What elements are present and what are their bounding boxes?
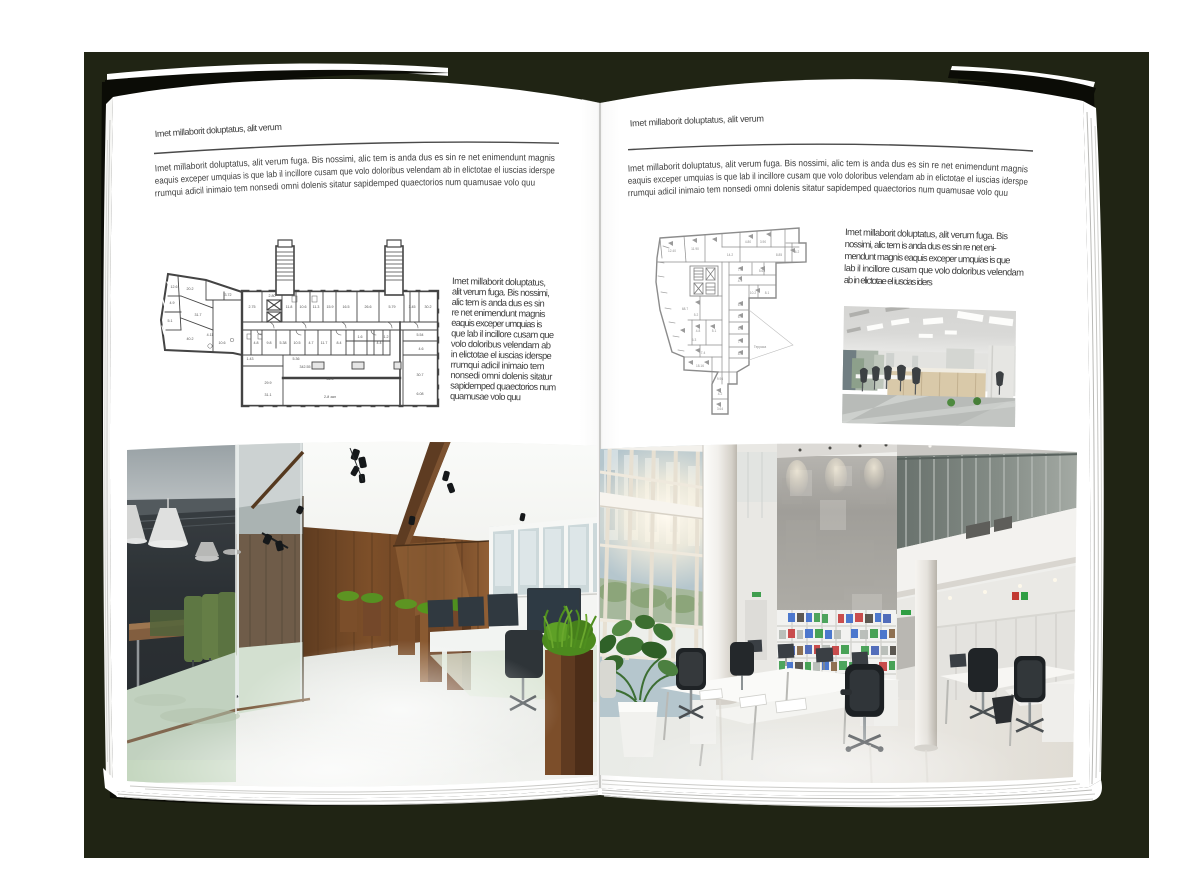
svg-text:26.6: 26.6	[365, 305, 372, 309]
svg-text:16.5: 16.5	[343, 305, 350, 309]
svg-text:20.2: 20.2	[187, 287, 194, 291]
svg-text:15.9: 15.9	[327, 305, 334, 309]
svg-text:2.75: 2.75	[249, 305, 256, 309]
svg-text:12.40: 12.40	[668, 249, 676, 253]
svg-text:14.2: 14.2	[727, 253, 733, 257]
svg-text:5.38: 5.38	[280, 341, 287, 345]
svg-text:10.6: 10.6	[300, 305, 307, 309]
svg-text:5.64: 5.64	[759, 269, 765, 273]
svg-text:7.7: 7.7	[738, 340, 743, 344]
svg-text:4.9: 4.9	[738, 279, 743, 283]
svg-text:9.96: 9.96	[717, 377, 723, 381]
svg-text:85.3: 85.3	[327, 377, 334, 381]
svg-text:5.1: 5.1	[168, 319, 173, 323]
svg-text:3.72: 3.72	[225, 293, 232, 297]
svg-text:2-й зал: 2-й зал	[324, 395, 336, 399]
svg-text:quamusae volo quu: quamusae volo quu	[450, 391, 521, 402]
svg-text:30.2: 30.2	[425, 305, 432, 309]
svg-text:8.4: 8.4	[337, 341, 342, 345]
svg-text:10.6: 10.6	[219, 341, 226, 345]
svg-text:11.90: 11.90	[691, 247, 699, 251]
svg-text:3.64: 3.64	[717, 407, 723, 411]
svg-text:11.8: 11.8	[286, 305, 293, 309]
svg-text:11.3: 11.3	[313, 305, 320, 309]
svg-text:5.2: 5.2	[694, 313, 699, 317]
svg-text:18.16: 18.16	[696, 364, 704, 368]
svg-text:1.2: 1.2	[384, 335, 389, 339]
svg-text:1.6: 1.6	[358, 335, 363, 339]
svg-text:6.4: 6.4	[738, 315, 743, 319]
svg-text:6.2: 6.2	[795, 250, 800, 254]
svg-text:5.79: 5.79	[389, 305, 396, 309]
svg-text:1.43: 1.43	[247, 357, 254, 361]
svg-text:31.1: 31.1	[265, 393, 272, 397]
svg-text:12.6: 12.6	[171, 285, 178, 289]
svg-text:6.9: 6.9	[738, 327, 743, 331]
svg-text:7.2: 7.2	[738, 268, 743, 272]
svg-text:6.08: 6.08	[417, 392, 424, 396]
svg-text:5.1: 5.1	[712, 329, 717, 333]
svg-text:4.2: 4.2	[718, 392, 723, 396]
svg-text:8.2: 8.2	[738, 352, 743, 356]
svg-text:31.7: 31.7	[195, 313, 202, 317]
svg-text:5.36: 5.36	[293, 357, 300, 361]
svg-text:6.3: 6.3	[692, 338, 697, 342]
svg-text:4.80: 4.80	[745, 240, 751, 244]
svg-text:4.4: 4.4	[377, 341, 382, 345]
svg-text:9.8: 9.8	[267, 341, 272, 345]
svg-text:ab in elictotae el iuscias ide: ab in elictotae el iuscias iders	[844, 274, 934, 287]
svg-text:40.2: 40.2	[187, 337, 194, 341]
svg-text:5.54: 5.54	[417, 333, 424, 337]
svg-text:1.45: 1.45	[409, 305, 416, 309]
svg-text:29.9: 29.9	[265, 381, 272, 385]
svg-text:4.8: 4.8	[696, 329, 701, 333]
svg-text:8.1: 8.1	[765, 291, 770, 295]
svg-text:8.85: 8.85	[776, 253, 782, 257]
svg-text:68.7: 68.7	[682, 307, 688, 311]
svg-text:4.9: 4.9	[170, 301, 175, 305]
svg-text:11.7: 11.7	[321, 341, 328, 345]
svg-text:3.90: 3.90	[760, 240, 766, 244]
svg-text:6.8: 6.8	[738, 303, 743, 307]
svg-text:10.5: 10.5	[294, 341, 301, 345]
svg-text:4.7: 4.7	[309, 341, 314, 345]
svg-text:2.80: 2.80	[269, 294, 276, 298]
svg-text:10.2: 10.2	[750, 291, 756, 295]
svg-text:4.11: 4.11	[207, 333, 214, 337]
svg-text:4.8: 4.8	[254, 341, 259, 345]
svg-text:Терраса: Терраса	[754, 345, 766, 349]
svg-text:4.6: 4.6	[419, 347, 424, 351]
svg-text:30.7: 30.7	[417, 373, 424, 377]
svg-text:7.4: 7.4	[701, 351, 706, 355]
svg-text:342.55: 342.55	[300, 365, 311, 369]
